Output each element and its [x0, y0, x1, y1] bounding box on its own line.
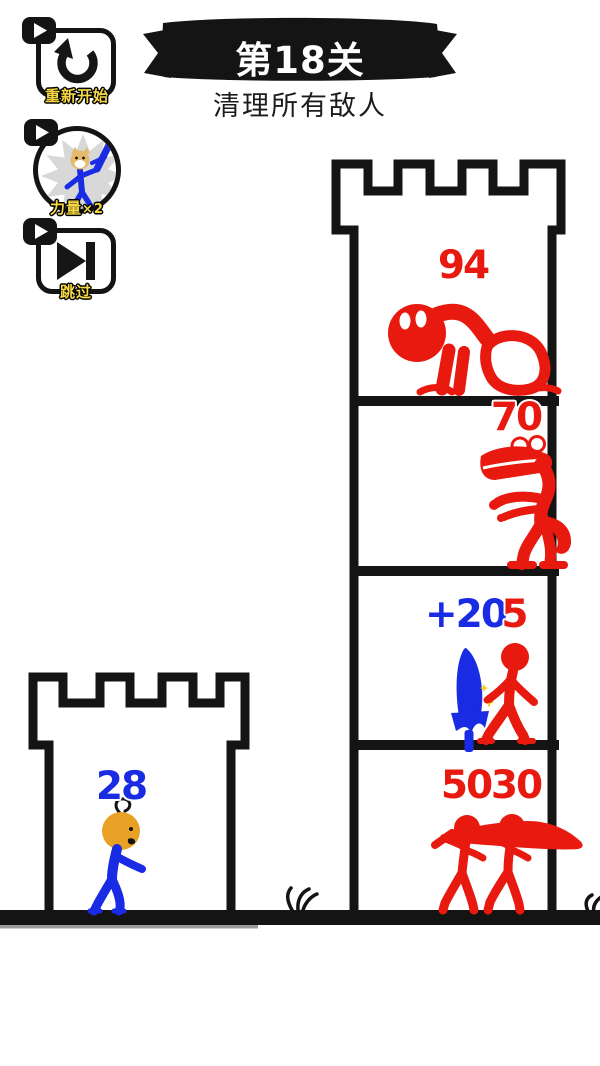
enemy-hp-floor4-right: 30 — [483, 766, 549, 805]
restart-icon — [49, 36, 105, 88]
level-title: 第18关 — [150, 30, 450, 84]
grass-tuft-center — [288, 888, 317, 910]
power-button-label: 力量×2 — [33, 197, 121, 218]
video-ad-icon — [23, 218, 57, 245]
crawler-head — [388, 304, 446, 362]
crawler-eye-left — [400, 313, 411, 330]
restart-button-label: 重新开始 — [36, 85, 118, 106]
video-ad-icon — [24, 119, 58, 146]
bonus-pickup-label: +20 — [425, 595, 505, 634]
enemy-hp-floor2: 70 — [474, 398, 558, 437]
skip-button-label: 跳过 — [36, 281, 116, 302]
hero-head — [102, 812, 140, 850]
hero-eye — [129, 827, 133, 831]
enemy-hp-floor1: 94 — [418, 246, 508, 285]
crawler-eye-right — [416, 311, 427, 328]
video-ad-icon — [22, 17, 56, 44]
game-screen: 第18关 清理所有敌人 重新开始 — [0, 0, 600, 1066]
skip-icon — [55, 240, 103, 282]
knife-grip — [465, 730, 474, 752]
enemy-hp-floor3: 5 — [494, 595, 534, 634]
power-label-text: 力量 — [50, 199, 82, 217]
stickman-head — [501, 643, 529, 671]
player-hp: 28 — [83, 767, 159, 806]
power-multiplier: ×2 — [82, 202, 104, 217]
